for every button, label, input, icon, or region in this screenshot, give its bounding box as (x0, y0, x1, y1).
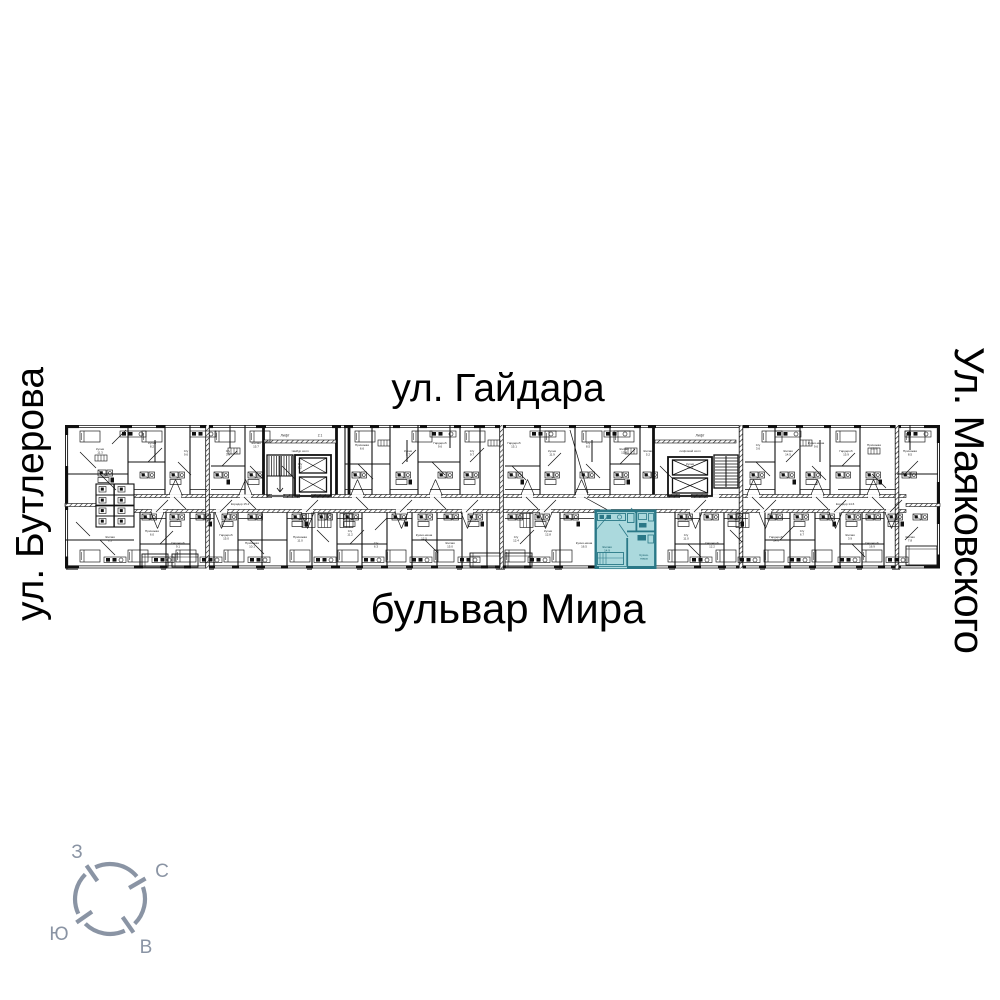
svg-text:3.5: 3.5 (108, 539, 113, 543)
svg-text:9.7: 9.7 (470, 453, 475, 457)
svg-text:9.6: 9.6 (814, 445, 819, 449)
svg-text:Лифт: Лифт (281, 434, 290, 438)
svg-text:6.7: 6.7 (800, 533, 805, 537)
svg-text:9.2: 9.2 (298, 466, 303, 470)
svg-text:5.2: 5.2 (646, 453, 651, 457)
svg-text:12.2: 12.2 (709, 545, 715, 549)
svg-text:8.2: 8.2 (150, 445, 155, 449)
svg-text:6.6: 6.6 (360, 447, 365, 451)
svg-text:11.2: 11.2 (347, 533, 353, 537)
svg-text:13.0: 13.0 (871, 447, 877, 451)
svg-text:11.3: 11.3 (97, 451, 103, 455)
svg-text:11.9: 11.9 (549, 453, 555, 457)
svg-text:15.0: 15.0 (447, 545, 453, 549)
svg-text:Коридор 15.2: Коридор 15.2 (231, 502, 250, 506)
svg-text:7.8: 7.8 (908, 539, 913, 543)
svg-text:3.9: 3.9 (848, 537, 853, 541)
svg-text:10.1: 10.1 (249, 545, 255, 549)
svg-text:Коридор 14.6: Коридор 14.6 (836, 502, 855, 506)
svg-text:3.6: 3.6 (756, 447, 761, 451)
svg-text:Лифт: Лифт (696, 434, 705, 438)
svg-text:11.0: 11.0 (683, 537, 689, 541)
svg-text:5.7: 5.7 (406, 453, 411, 457)
svg-text:6.0: 6.0 (150, 533, 155, 537)
svg-text:С: С (155, 861, 169, 882)
svg-text:16.9: 16.9 (869, 545, 875, 549)
svg-text:16.5: 16.5 (581, 545, 587, 549)
svg-text:15.7: 15.7 (253, 445, 259, 449)
svg-text:З: З (71, 842, 82, 863)
svg-text:15.3: 15.3 (687, 466, 693, 470)
svg-text:12.4: 12.4 (513, 539, 519, 543)
svg-text:9.6: 9.6 (184, 453, 189, 457)
svg-text:12.5: 12.5 (421, 537, 427, 541)
svg-text:тамбур холл: тамбур холл (291, 449, 308, 453)
svg-text:12.4: 12.4 (621, 451, 627, 455)
svg-text:2.1: 2.1 (318, 434, 323, 438)
svg-text:8.5: 8.5 (908, 453, 913, 457)
svg-text:11.0: 11.0 (297, 539, 303, 543)
svg-text:14.9: 14.9 (604, 548, 610, 552)
svg-text:8.5: 8.5 (586, 445, 591, 449)
svg-text:6.3: 6.3 (374, 545, 379, 549)
svg-text:15.0: 15.0 (223, 537, 229, 541)
svg-text:12.8: 12.8 (545, 533, 551, 537)
svg-text:3.9: 3.9 (226, 453, 231, 457)
svg-text:14.6: 14.6 (773, 539, 779, 543)
svg-text:15.9: 15.9 (843, 453, 849, 457)
svg-text:ниша: ниша (640, 556, 648, 560)
svg-text:9.1: 9.1 (176, 545, 181, 549)
svg-text:В: В (140, 937, 153, 958)
svg-text:14.5: 14.5 (785, 453, 791, 457)
svg-text:лифтовой холл: лифтовой холл (679, 449, 700, 453)
svg-text:9.6: 9.6 (438, 445, 443, 449)
svg-text:Ю: Ю (49, 924, 68, 945)
svg-text:15.1: 15.1 (511, 445, 517, 449)
